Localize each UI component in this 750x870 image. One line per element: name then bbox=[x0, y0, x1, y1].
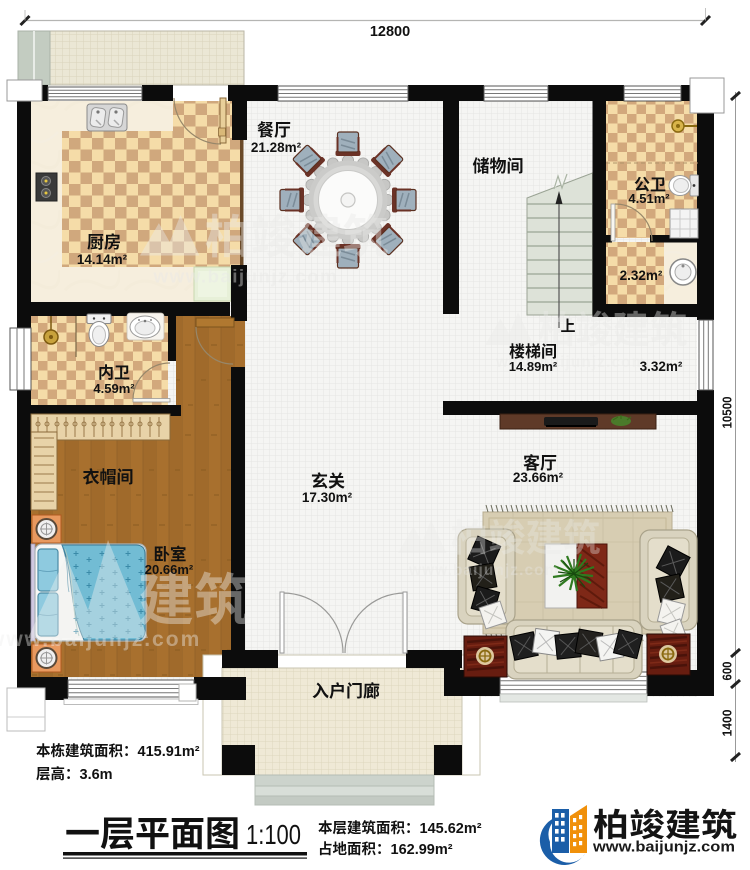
svg-text:www.baijunjz.com: www.baijunjz.com bbox=[408, 558, 559, 580]
svg-text:入户门廊: 入户门廊 bbox=[312, 677, 380, 702]
svg-text:1:100: 1:100 bbox=[246, 813, 301, 853]
svg-text:14.14m²: 14.14m² bbox=[77, 248, 128, 268]
svg-text:柏竣建筑: 柏竣建筑 bbox=[205, 201, 389, 267]
svg-text:4.51m²: 4.51m² bbox=[628, 188, 670, 207]
svg-text:本层建筑面积：145.62m²: 本层建筑面积：145.62m² bbox=[318, 817, 482, 838]
svg-text:www.baijunjz.com: www.baijunjz.com bbox=[592, 836, 735, 857]
svg-text:柏竣建筑: 柏竣建筑 bbox=[451, 508, 601, 562]
svg-text:1400: 1400 bbox=[717, 709, 736, 736]
svg-text:10500: 10500 bbox=[717, 396, 736, 428]
svg-text:14.89m²: 14.89m² bbox=[509, 356, 558, 375]
svg-text:20.66m²: 20.66m² bbox=[145, 559, 194, 578]
svg-text:23.66m²: 23.66m² bbox=[513, 466, 564, 486]
svg-text:600: 600 bbox=[717, 661, 736, 680]
svg-text:占地面积：162.99m²: 占地面积：162.99m² bbox=[318, 838, 453, 859]
svg-text:17.30m²: 17.30m² bbox=[302, 486, 353, 506]
svg-text:上: 上 bbox=[560, 315, 575, 336]
svg-text:21.28m²: 21.28m² bbox=[251, 136, 302, 156]
svg-text:衣帽间: 衣帽间 bbox=[83, 463, 134, 488]
svg-text:4.59m²: 4.59m² bbox=[93, 378, 135, 397]
svg-text:储物间: 储物间 bbox=[473, 152, 524, 177]
svg-text:本栋建筑面积：415.91m²: 本栋建筑面积：415.91m² bbox=[36, 740, 200, 761]
svg-text:www.baijunjz.com: www.baijunjz.com bbox=[0, 623, 201, 653]
svg-text:www.baijunjz.com: www.baijunjz.com bbox=[153, 262, 339, 289]
svg-text:12800: 12800 bbox=[370, 20, 410, 41]
svg-text:一层平面图: 一层平面图 bbox=[65, 806, 240, 857]
svg-text:3.32m²: 3.32m² bbox=[640, 355, 683, 375]
svg-text:层高：3.6m: 层高：3.6m bbox=[36, 763, 113, 784]
svg-text:2.32m²: 2.32m² bbox=[620, 264, 663, 284]
